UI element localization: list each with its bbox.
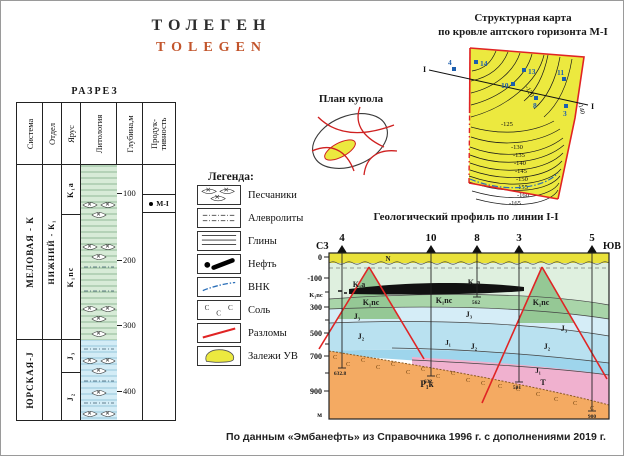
svg-text:14: 14: [480, 59, 488, 68]
svg-text:0: 0: [318, 253, 322, 262]
productivity-column: М-I: [143, 165, 175, 420]
dome-plan-sketch: [304, 105, 399, 177]
legend-item-clay: Глины: [197, 231, 277, 251]
svg-text:10: 10: [426, 232, 438, 244]
structural-map: -120 -125 -130 -135 -140 -145 -150 -155 …: [421, 41, 621, 213]
svg-text:N: N: [385, 255, 390, 263]
svg-text:C: C: [361, 357, 365, 364]
svg-text:T: T: [540, 378, 546, 387]
svg-text:-100: -100: [307, 274, 322, 283]
header-productivity: Продук- тивность: [143, 103, 175, 165]
svg-text:10: 10: [501, 81, 509, 90]
horizon-m1-label: М-I: [156, 199, 169, 208]
dome-plan-title: План купола: [299, 93, 403, 105]
svg-text:3: 3: [516, 232, 522, 244]
header-yarus: Ярус: [62, 103, 81, 165]
field-title-en: TOLEGEN: [134, 40, 289, 56]
profile-title: Геологический профиль по линии I-I: [321, 211, 611, 223]
lithology-pattern: [81, 165, 117, 420]
svg-text:-145: -145: [515, 168, 527, 175]
geological-profile: C C C C C C C C C C C C C C C C C N K₁a …: [292, 227, 624, 425]
svg-text:C: C: [421, 366, 425, 373]
svg-text:5: 5: [589, 232, 595, 244]
yarus-k1nc: K₁nc: [62, 215, 81, 340]
svg-text:J₂: J₂: [544, 342, 551, 351]
razrez-title: РАЗРЕЗ: [16, 86, 174, 97]
header-lithology: Литология: [81, 103, 117, 165]
svg-text:м: м: [317, 411, 322, 419]
svg-text:K₁a: K₁a: [468, 278, 481, 287]
svg-text:4: 4: [339, 232, 345, 244]
legend-item-sandstone: Песчаники: [197, 185, 297, 205]
strat-table: Система Отдел Ярус Литология Глубина,м П…: [16, 102, 176, 421]
svg-text:500: 500: [310, 329, 322, 338]
depth-300: 300: [123, 320, 136, 330]
header-system: Система: [17, 103, 43, 165]
oil-dot-icon: [149, 202, 153, 206]
svg-text:C: C: [436, 373, 440, 380]
svg-text:C: C: [216, 309, 221, 317]
map-title-line1: Структурная карта: [425, 12, 621, 24]
svg-text:J₂: J₂: [471, 342, 478, 351]
svg-text:J₃: J₃: [354, 312, 361, 321]
svg-text:8: 8: [474, 232, 480, 244]
svg-text:C: C: [481, 380, 485, 387]
svg-text:900: 900: [310, 387, 322, 396]
header-depth: Глубина,м: [117, 103, 143, 165]
profile-depth-scale: 0 -100 300 500 700 900 м: [307, 253, 329, 419]
fault-symbol-icon: [197, 323, 241, 343]
svg-text:C: C: [228, 304, 233, 312]
yarus-k1a: K₁a: [62, 165, 81, 215]
clay-symbol-icon: [197, 231, 241, 251]
hc-deposit-symbol-icon: [197, 346, 241, 366]
vnk-symbol-icon: [197, 277, 241, 297]
system-jurassic: ЮРСКАЯ-J: [17, 340, 43, 420]
svg-text:C: C: [498, 383, 502, 390]
depth-400: 400: [123, 386, 136, 396]
svg-text:8: 8: [533, 101, 537, 110]
direction-se: ЮВ: [603, 241, 621, 252]
system-cretaceous: МЕЛОВАЯ - К: [17, 165, 43, 340]
svg-text:C: C: [466, 377, 470, 384]
legend-item-hc-deposits: Залежи УВ: [197, 346, 298, 366]
svg-text:562: 562: [472, 300, 481, 306]
svg-text:3: 3: [563, 109, 567, 118]
svg-text:4: 4: [448, 58, 452, 67]
svg-text:C: C: [333, 354, 337, 361]
depth-column: 100 200 300 400: [117, 165, 143, 420]
yarus-j2: J₂: [62, 373, 81, 420]
svg-text:K₁nc: K₁nc: [436, 296, 453, 305]
svg-text:C: C: [573, 400, 577, 407]
geological-figure: ТОЛЕГЕН TOLEGEN РАЗРЕЗ Система Отдел Яру…: [0, 0, 624, 456]
svg-text:-130: -130: [511, 144, 523, 151]
svg-text:300: 300: [310, 303, 322, 312]
otdel-empty: [43, 340, 62, 420]
productivity-horizon-cell: М-I: [143, 194, 175, 213]
svg-text:632.8: 632.8: [334, 371, 347, 377]
svg-text:K₁a: K₁a: [353, 280, 366, 289]
svg-text:J₃: J₃: [561, 324, 568, 333]
svg-text:K₁nc: K₁nc: [363, 298, 380, 307]
depth-100: 100: [123, 188, 136, 198]
sandstone-symbol-icon: [197, 185, 241, 205]
svg-text:J₂: J₂: [358, 332, 365, 341]
svg-text:I: I: [591, 102, 594, 111]
svg-text:-150: -150: [516, 176, 528, 183]
svg-text:C: C: [406, 369, 410, 376]
source-caption: По данным «Эмбанефть» из Справочника 199…: [216, 431, 616, 443]
legend-title: Легенда:: [208, 171, 254, 183]
svg-text:-125: -125: [501, 121, 513, 128]
well-numbers: 4 10 8 3 5: [339, 232, 595, 244]
svg-text:C: C: [451, 370, 455, 377]
yarus-j3: J₃: [62, 340, 81, 373]
svg-text:J₃: J₃: [466, 310, 473, 319]
svg-text:I: I: [423, 65, 426, 74]
svg-text:581: 581: [513, 385, 522, 391]
svg-text:J₁: J₁: [445, 339, 451, 347]
svg-text:C: C: [205, 304, 210, 312]
otdel-lower-k1: НИЖНИЙ - К₁: [43, 165, 62, 340]
svg-text:C: C: [346, 361, 350, 368]
svg-text:C: C: [391, 361, 395, 368]
svg-text:J₁: J₁: [535, 367, 541, 375]
svg-text:-135: -135: [513, 152, 525, 159]
siltstone-symbol-icon: [197, 208, 241, 228]
legend-item-oil: Нефть: [197, 254, 277, 274]
field-title-ru: ТОЛЕГЕН: [134, 17, 289, 35]
header-otdel: Отдел: [43, 103, 62, 165]
svg-text:632: 632: [424, 379, 433, 385]
svg-text:C: C: [536, 391, 540, 398]
legend-item-vnk: ВНК: [197, 277, 270, 297]
title-block: ТОЛЕГЕН TOLEGEN: [134, 17, 289, 56]
legend-item-faults: Разломы: [197, 323, 287, 343]
svg-text:C: C: [376, 364, 380, 371]
well-head-markers: [337, 245, 597, 253]
legend-item-siltstone: Алевролиты: [197, 208, 303, 228]
oil-symbol-icon: [197, 254, 241, 274]
direction-nw: СЗ: [316, 241, 329, 252]
svg-text:K₁nc: K₁nc: [309, 292, 323, 299]
svg-text:-165: -165: [509, 200, 521, 207]
svg-text:13: 13: [528, 67, 536, 76]
legend-item-salt: C C C Соль: [197, 300, 270, 320]
svg-text:-140: -140: [514, 160, 526, 167]
svg-text:K₁nc: K₁nc: [533, 298, 550, 307]
salt-symbol-icon: C C C: [197, 300, 241, 320]
depth-200: 200: [123, 255, 136, 265]
svg-text:11: 11: [557, 68, 564, 77]
svg-text:C: C: [554, 396, 558, 403]
lithology-column: [81, 165, 117, 420]
map-title-line2: по кровле аптского горизонта М-I: [425, 26, 621, 38]
svg-text:700: 700: [310, 352, 322, 361]
dome-deposit: [322, 136, 359, 164]
